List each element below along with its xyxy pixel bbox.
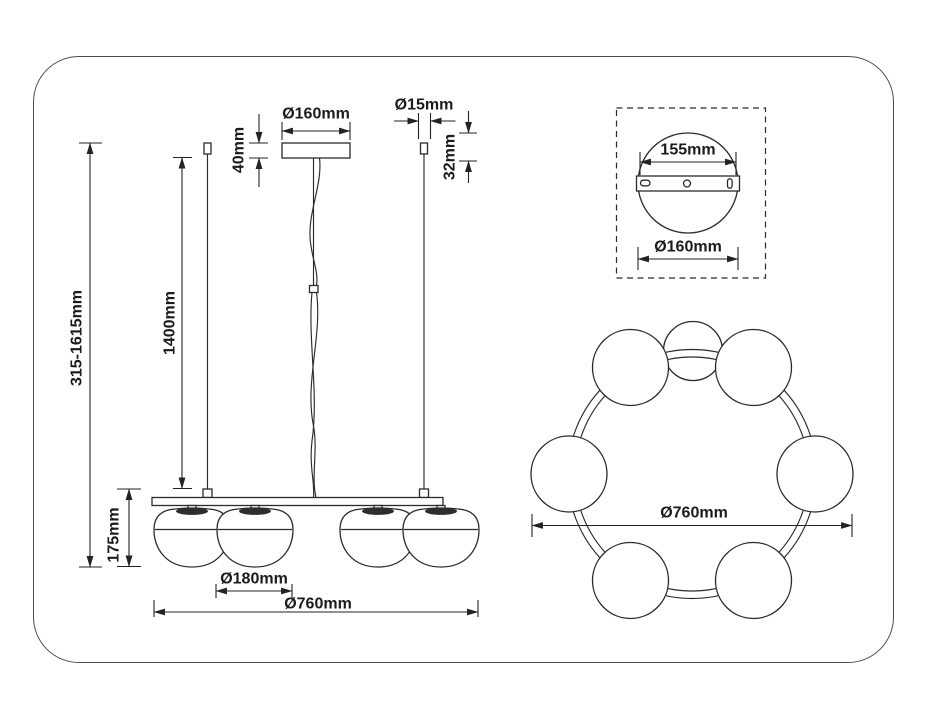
dim-bracket-length-label: 155mm [660,142,715,159]
plan-shade-top-left [593,330,669,406]
right-rod-bar-mount [420,489,429,498]
dim-canopy-height: 40mm [231,114,268,187]
suspension-cable-coiled [310,158,320,286]
bracket-slot-left [641,180,651,186]
dim-canopy-height-label: 40mm [231,127,248,173]
dim-detail-canopy-diameter: Ø160mm [638,239,738,270]
dim-overall-height: 315-1615mm [69,143,102,567]
left-rod-bar-mount [203,489,212,498]
glass-shade-2 [217,508,293,567]
technical-drawing: Ø160mm 40mm Ø15mm 32mm [0,0,925,720]
glass-shade-4 [403,508,479,567]
dim-suspension-length-label: 1400mm [162,291,179,355]
dim-overall-diameter-front: Ø760mm [154,596,478,617]
dim-rod-diameter: Ø15mm [394,97,456,139]
dim-shade-diameter-label: Ø180mm [220,571,288,588]
shade-cap-3 [362,508,394,515]
shade-cap-4 [425,508,457,515]
front-view: Ø160mm 40mm Ø15mm 32mm [69,97,479,617]
shade-cap-1 [176,508,208,515]
right-rod-ceiling-mount [421,143,428,154]
plan-shade-top-right [716,330,792,406]
dim-rod-mount-height-ticks [459,133,477,161]
dim-canopy-height-ticks [249,143,268,158]
canopy-detail-view: 155mm Ø160mm [617,108,766,278]
drawing-canvas: Ø160mm 40mm Ø15mm 32mm [0,0,925,720]
canopy-plate [282,143,350,158]
dim-overall-diameter-front-label: Ø760mm [284,596,352,613]
dim-canopy-diameter: Ø160mm [282,106,350,140]
shade-cap-2 [239,508,271,515]
cable-connector [310,286,319,293]
dim-body-height-label: 175mm [106,507,123,562]
fixture-bar [152,498,443,506]
dim-canopy-diameter-label: Ø160mm [282,106,350,123]
dim-overall-diameter-top-label: Ø760mm [660,505,728,522]
bracket-slot-right [728,179,733,188]
dim-rod-diameter-label: Ø15mm [395,97,454,114]
dim-shade-diameter: Ø180mm [216,571,292,598]
top-view: Ø760mm [531,322,853,619]
plan-shade-bottom-right [716,543,792,619]
dim-detail-canopy-diameter-label: Ø160mm [654,239,722,256]
plan-shade-right [777,436,853,512]
dim-rod-mount-height-label: 32mm [442,134,459,180]
bracket-hole-center [684,180,691,187]
plan-shade-bottom-left [593,543,669,619]
left-rod-ceiling-mount [204,143,211,154]
dim-suspension-length: 1400mm [162,158,192,489]
dim-overall-height-label: 315-1615mm [69,290,86,386]
dim-rod-diameter-ticks [419,113,431,139]
dim-rod-mount-height: 32mm [442,111,477,183]
plan-shade-left [531,436,607,512]
dim-body-height: 175mm [106,489,141,567]
